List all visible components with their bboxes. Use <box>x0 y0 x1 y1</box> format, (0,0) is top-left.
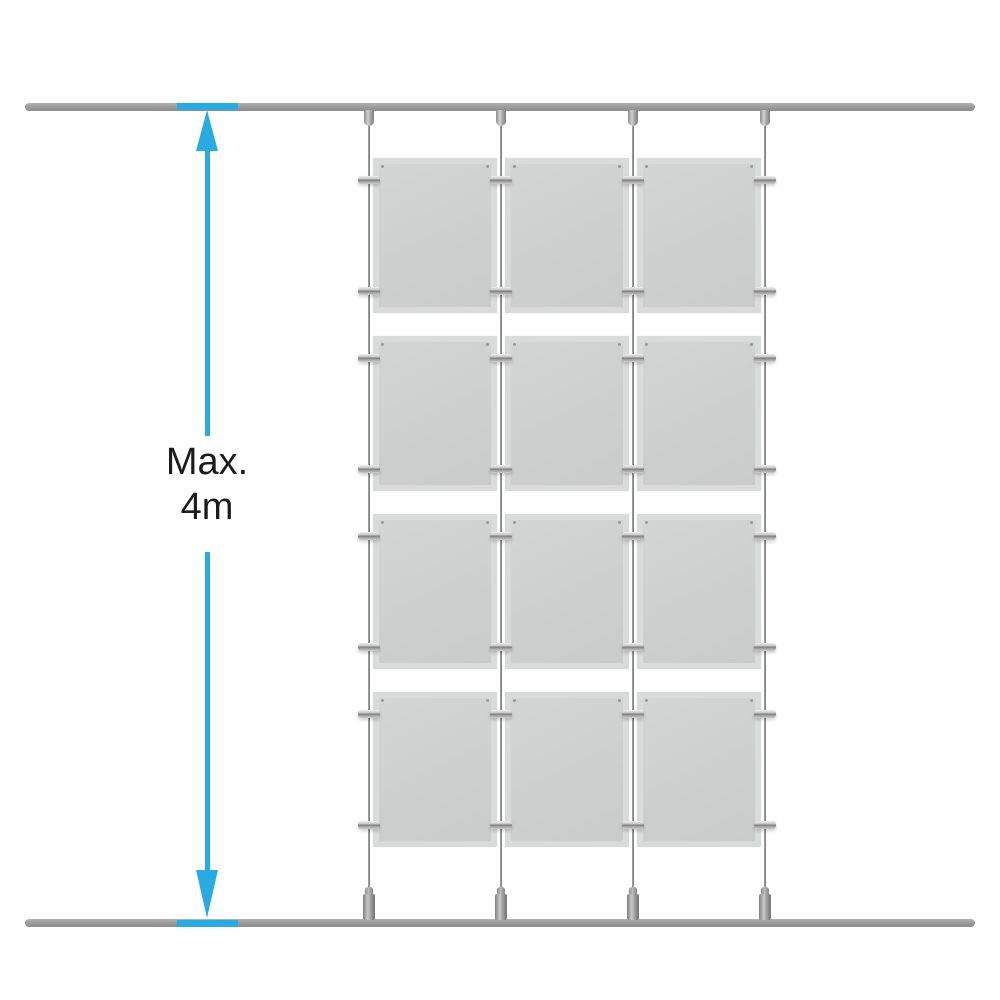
panel-clamp <box>754 354 776 362</box>
panel-clamp <box>358 287 380 295</box>
panel-clamp <box>622 287 644 295</box>
ceiling-cable-gripper <box>496 110 506 126</box>
dimension-arrow-up-icon <box>196 110 218 151</box>
panel-clamp <box>622 532 644 540</box>
poster-panel <box>505 336 629 491</box>
floor-track <box>25 919 975 927</box>
floor-cable-tensioner <box>363 894 375 920</box>
suspension-cable <box>500 110 502 920</box>
panel-clamp <box>358 821 380 829</box>
ceiling-cable-gripper <box>364 110 374 126</box>
panel-clamp <box>358 710 380 718</box>
panel-clamp <box>754 287 776 295</box>
panel-clamp <box>490 287 512 295</box>
panel-clamp <box>358 176 380 184</box>
poster-panel <box>373 692 497 847</box>
panel-clamp <box>754 821 776 829</box>
panel-clamp <box>490 710 512 718</box>
poster-panel <box>637 336 761 491</box>
panel-clamp <box>622 354 644 362</box>
dimension-line-upper <box>205 149 210 436</box>
dimension-arrow-down-icon <box>196 870 218 918</box>
panel-clamp <box>490 532 512 540</box>
poster-panel <box>637 514 761 669</box>
ceiling-cable-gripper <box>760 110 770 126</box>
suspension-cable <box>632 110 634 920</box>
panel-clamp <box>754 710 776 718</box>
dimension-extension-bottom <box>177 920 238 927</box>
suspension-cable <box>368 110 370 920</box>
dimension-extension-top <box>177 103 238 110</box>
panel-clamp <box>358 465 380 473</box>
panel-clamp <box>622 176 644 184</box>
poster-panel <box>373 158 497 313</box>
floor-cable-tensioner <box>759 894 771 920</box>
panel-clamp <box>754 176 776 184</box>
poster-panel <box>637 692 761 847</box>
panel-clamp <box>490 354 512 362</box>
diagram-canvas: Max. 4m <box>0 0 1000 1000</box>
panel-clamp <box>490 821 512 829</box>
panel-clamp <box>490 643 512 651</box>
panel-clamp <box>622 821 644 829</box>
poster-panel <box>373 514 497 669</box>
poster-panel <box>505 692 629 847</box>
dimension-line-lower <box>205 552 210 870</box>
panel-clamp <box>358 354 380 362</box>
suspension-cable <box>764 110 766 920</box>
dimension-label: Max. 4m <box>107 440 307 530</box>
panel-clamp <box>490 176 512 184</box>
floor-cable-tensioner <box>495 894 507 920</box>
poster-panel <box>637 158 761 313</box>
panel-clamp <box>358 532 380 540</box>
panel-clamp <box>622 643 644 651</box>
panel-clamp <box>358 643 380 651</box>
poster-panel <box>505 158 629 313</box>
panel-clamp <box>622 710 644 718</box>
panel-clamp <box>754 643 776 651</box>
panel-clamp <box>754 465 776 473</box>
dimension-label-line1: Max. <box>107 440 307 485</box>
panel-clamp <box>622 465 644 473</box>
panel-clamp <box>754 532 776 540</box>
ceiling-cable-gripper <box>628 110 638 126</box>
floor-cable-tensioner <box>627 894 639 920</box>
dimension-label-line2: 4m <box>107 485 307 530</box>
poster-panel <box>373 336 497 491</box>
panel-clamp <box>490 465 512 473</box>
poster-panel <box>505 514 629 669</box>
